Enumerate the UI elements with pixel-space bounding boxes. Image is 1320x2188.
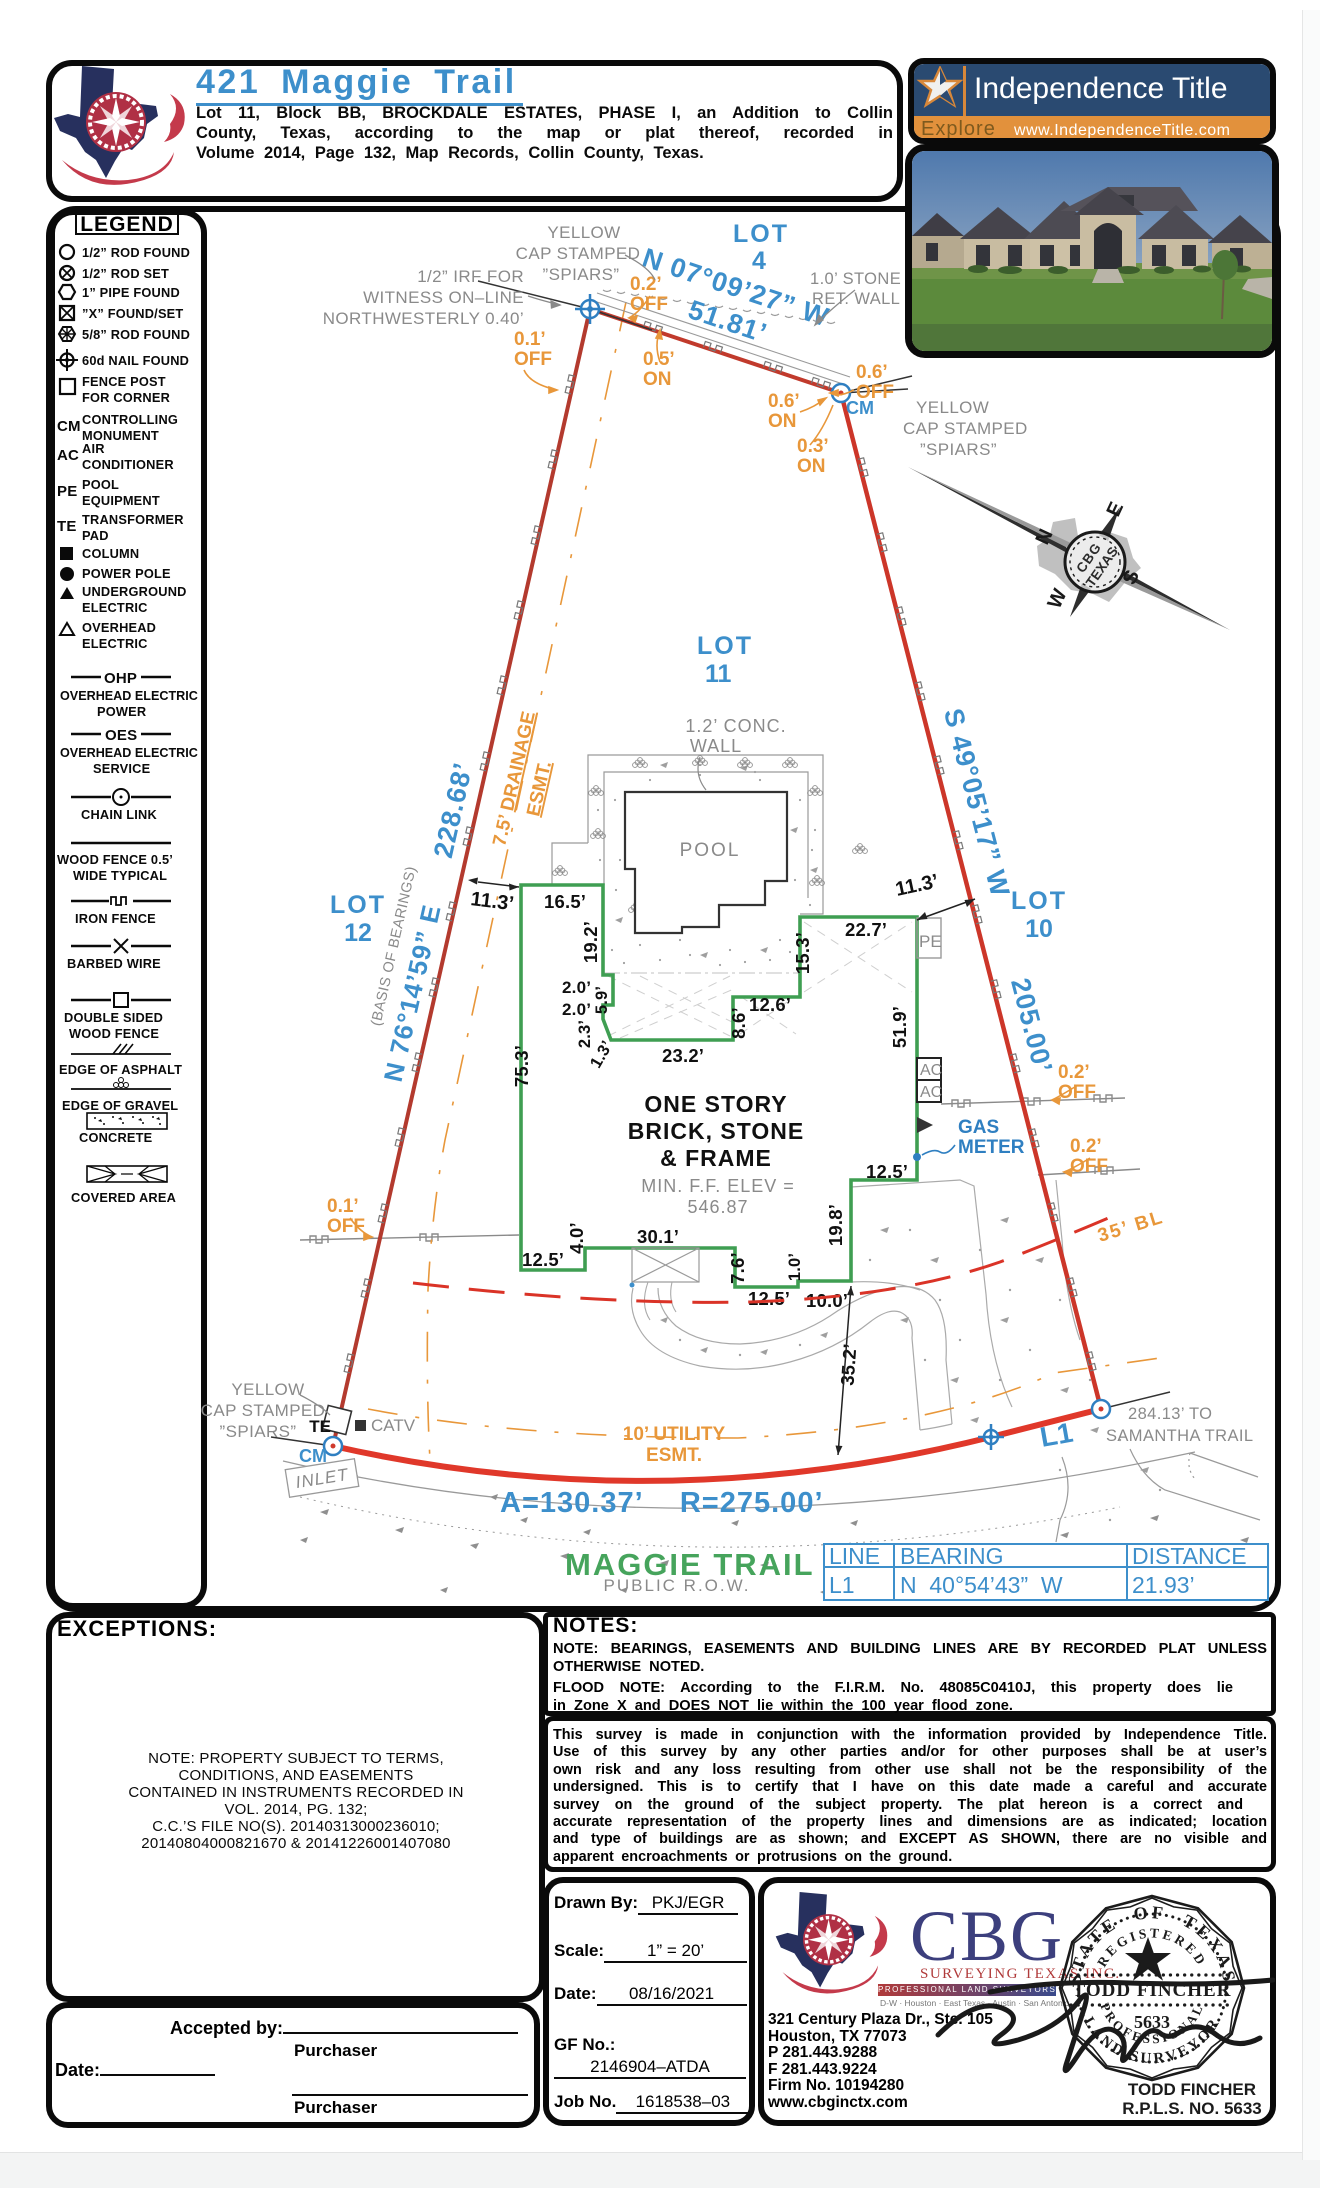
svg-text:WOOD FENCE: WOOD FENCE: [69, 1026, 159, 1041]
svg-text:OES: OES: [105, 727, 137, 744]
svg-text:OVERHEAD ELECTRIC: OVERHEAD ELECTRIC: [60, 689, 198, 703]
svg-text:”X” FOUND/SET: ”X” FOUND/SET: [82, 306, 183, 321]
svg-text:CONDITIONER: CONDITIONER: [82, 457, 174, 472]
svg-text:POWER POLE: POWER POLE: [82, 566, 171, 581]
svg-text:CHAIN LINK: CHAIN LINK: [81, 807, 157, 822]
svg-text:5/8” ROD FOUND: 5/8” ROD FOUND: [82, 327, 190, 342]
svg-text:AC: AC: [57, 447, 79, 464]
svg-text:FENCE POST: FENCE POST: [82, 374, 166, 389]
svg-text:COVERED AREA: COVERED AREA: [71, 1190, 176, 1205]
svg-text:EQUIPMENT: EQUIPMENT: [82, 493, 160, 508]
svg-text:POOL: POOL: [82, 477, 119, 492]
svg-text:EDGE OF GRAVEL: EDGE OF GRAVEL: [62, 1098, 178, 1113]
svg-text:UNDERGROUND: UNDERGROUND: [82, 584, 187, 599]
svg-text:COLUMN: COLUMN: [82, 546, 139, 561]
svg-text:OVERHEAD: OVERHEAD: [82, 620, 156, 635]
svg-text:IRON FENCE: IRON FENCE: [75, 911, 156, 926]
svg-text:1/2” ROD SET: 1/2” ROD SET: [82, 266, 169, 281]
svg-text:PAD: PAD: [82, 528, 109, 543]
svg-text:DOUBLE SIDED: DOUBLE SIDED: [64, 1010, 163, 1025]
svg-text:TRANSFORMER: TRANSFORMER: [82, 512, 184, 527]
svg-text:TE: TE: [57, 518, 77, 535]
svg-text:OHP: OHP: [104, 670, 137, 687]
svg-text:1/2” ROD FOUND: 1/2” ROD FOUND: [82, 245, 190, 260]
svg-text:60d NAIL FOUND: 60d NAIL FOUND: [82, 353, 189, 368]
svg-text:AIR: AIR: [82, 441, 105, 456]
svg-text:WIDE TYPICAL: WIDE TYPICAL: [73, 868, 167, 883]
svg-text:WOOD FENCE 0.5’: WOOD FENCE 0.5’: [57, 852, 173, 867]
svg-text:R.P.L.S. NO. 5633: R.P.L.S. NO. 5633: [1122, 2099, 1262, 2118]
svg-text:ELECTRIC: ELECTRIC: [82, 636, 148, 651]
svg-text:1” PIPE FOUND: 1” PIPE FOUND: [82, 285, 180, 300]
svg-text:FOR CORNER: FOR CORNER: [82, 390, 170, 405]
svg-text:OVERHEAD ELECTRIC: OVERHEAD ELECTRIC: [60, 746, 198, 760]
svg-text:CONTROLLING: CONTROLLING: [82, 412, 178, 427]
svg-text:CM: CM: [57, 418, 81, 435]
svg-text:CONCRETE: CONCRETE: [79, 1130, 153, 1145]
svg-text:POWER: POWER: [97, 704, 146, 719]
svg-text:PE: PE: [57, 483, 77, 500]
svg-text:EDGE OF ASPHALT: EDGE OF ASPHALT: [59, 1062, 182, 1077]
svg-text:SERVICE: SERVICE: [93, 761, 151, 776]
svg-text:ELECTRIC: ELECTRIC: [82, 600, 148, 615]
svg-text:BARBED WIRE: BARBED WIRE: [67, 956, 161, 971]
